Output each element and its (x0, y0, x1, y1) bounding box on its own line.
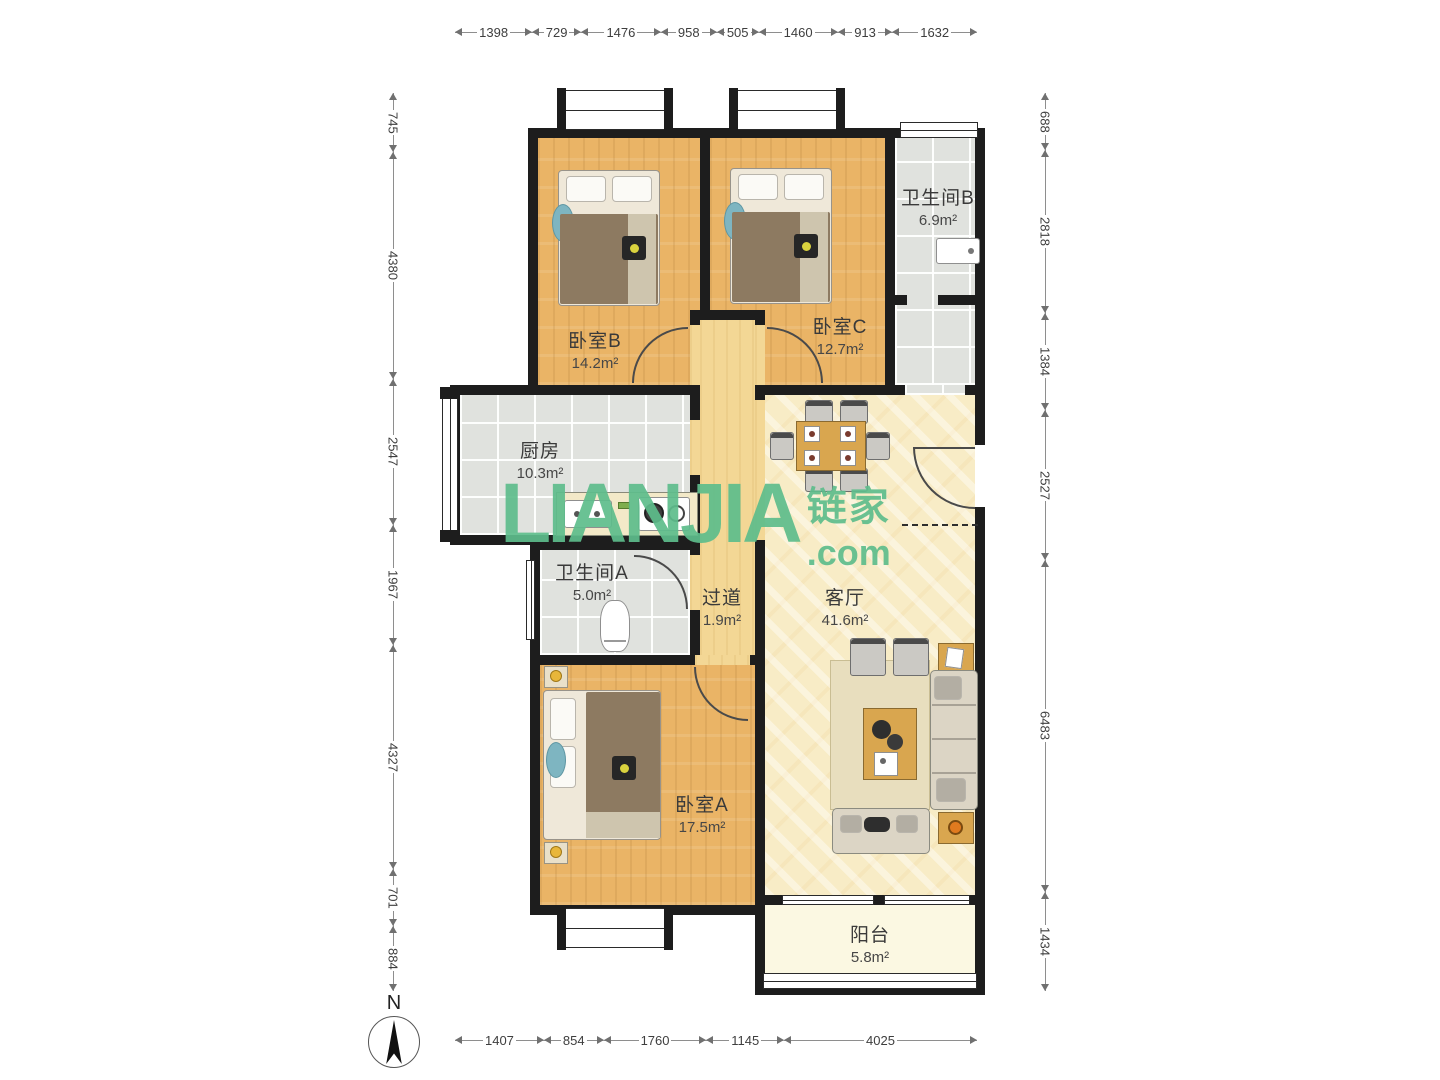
closet-wall-stub (938, 295, 985, 305)
dimension-value: 1460 (782, 26, 815, 39)
bed-pillow (550, 698, 576, 740)
room-name: 客厅 (780, 583, 910, 610)
sofa-pillow (896, 815, 918, 833)
sofa-pillow (936, 778, 966, 802)
dimension-segment: 2818 (1033, 150, 1057, 313)
room-area: 10.3m² (475, 465, 605, 482)
plate-dot (845, 455, 851, 461)
dimension-segment: 1407 (455, 1029, 544, 1051)
room-area: 17.5m² (637, 819, 767, 836)
window-cap (440, 387, 460, 399)
room-area: 5.0m² (527, 587, 657, 604)
north-arrow-icon (381, 1020, 407, 1064)
lamp-dot (802, 242, 811, 251)
dimension-value: 1967 (387, 568, 400, 601)
round-pillow (546, 742, 566, 778)
window-cap (557, 88, 566, 132)
dimension-value: 2527 (1039, 469, 1052, 502)
label-balcony: 阳台 5.8m² (805, 920, 935, 966)
opening-kitchen (690, 420, 700, 475)
dimension-segment: 6483 (1033, 560, 1057, 892)
room-name: 卫生间B (873, 183, 1003, 210)
room-name: 阳台 (805, 920, 935, 947)
dimension-segment: 4327 (381, 645, 405, 870)
balcony-slider-window (782, 895, 874, 905)
dimension-value: 958 (676, 26, 702, 39)
opening-hall-living (755, 400, 765, 540)
window-cap (729, 88, 738, 132)
label-kitchen: 厨房 10.3m² (475, 436, 605, 482)
toilet-seat-line (604, 640, 626, 642)
sofa-cushion-dark (864, 817, 890, 832)
sink-drain (594, 511, 600, 517)
dimension-segment: 1967 (381, 525, 405, 645)
lamp-dot (550, 670, 562, 682)
bed-pillow (612, 176, 652, 202)
bay-window-bedroom-c (737, 90, 837, 130)
plate-dot (845, 431, 851, 437)
dimension-value: 688 (1039, 109, 1052, 135)
armchair (850, 638, 886, 676)
sofa-pillow (934, 676, 962, 700)
dining-chair (770, 432, 794, 460)
room-name: 过道 (657, 583, 787, 610)
dimension-segment: 958 (661, 21, 717, 43)
plate-dot (880, 758, 886, 764)
balcony-window (763, 973, 977, 989)
room-name: 卧室B (530, 326, 660, 353)
dimension-value: 729 (544, 26, 570, 39)
label-bedroom-a: 卧室A 17.5m² (637, 790, 767, 836)
room-area: 41.6m² (780, 612, 910, 629)
dining-chair (840, 468, 868, 492)
dimension-column-left: 7454380254719674327701884 (381, 93, 405, 991)
dimension-segment: 4025 (784, 1029, 977, 1051)
room-area: 6.9m² (873, 212, 1003, 229)
lamp-dot (630, 244, 639, 253)
lamp-dot (550, 846, 562, 858)
label-bedroom-b: 卧室B 14.2m² (530, 326, 660, 372)
label-bathroom-a: 卫生间A 5.0m² (527, 558, 657, 604)
coffee-table-plate (874, 752, 898, 776)
label-living-room: 客厅 41.6m² (780, 583, 910, 629)
dining-chair (805, 468, 833, 492)
kitchen-sink (564, 500, 612, 528)
room-area: 1.9m² (657, 612, 787, 629)
room-name: 厨房 (475, 436, 605, 463)
north-compass: N (366, 992, 422, 1068)
dimension-segment: 854 (544, 1029, 604, 1051)
dimension-value: 1760 (639, 1034, 672, 1047)
dimension-value: 1384 (1039, 345, 1052, 378)
dimension-segment: 4380 (381, 152, 405, 379)
dimension-column-right: 68828181384252764831434 (1033, 93, 1057, 991)
dimension-value: 4380 (387, 249, 400, 282)
bed-pillow (566, 176, 606, 202)
dimension-segment: 745 (381, 93, 405, 152)
closet-wall-stub (885, 295, 907, 305)
dimension-value: 1407 (483, 1034, 516, 1047)
dining-chair (866, 432, 890, 460)
dimension-segment: 884 (381, 926, 405, 991)
dimension-segment: 1145 (706, 1029, 784, 1051)
room-name: 卧室A (637, 790, 767, 817)
lamp-dot (620, 764, 629, 773)
window-cap (557, 906, 566, 950)
window-cap (440, 530, 460, 542)
dimension-segment: 1384 (1033, 313, 1057, 410)
dimension-value: 2547 (387, 435, 400, 468)
entry-dashed-line (902, 524, 978, 526)
dimension-segment: 729 (532, 21, 581, 43)
window-cap (664, 906, 673, 950)
bay-window-bedroom-a (565, 908, 665, 948)
fruit-plate (948, 820, 963, 835)
dimension-value: 505 (725, 26, 751, 39)
coffee-table-tray (887, 734, 903, 750)
bed-pillow (738, 174, 778, 200)
door-gap-bedroom-c (755, 325, 765, 385)
kitchen-accessory (618, 502, 630, 509)
room-area: 12.7m² (775, 341, 905, 358)
book (945, 647, 965, 669)
dimension-value: 2818 (1039, 215, 1052, 248)
sofa-cushion-line (932, 738, 976, 740)
room-name: 卧室C (775, 312, 905, 339)
sink-drain (574, 511, 580, 517)
door-gap-bedroom-a (695, 655, 750, 665)
dimension-value: 701 (387, 885, 400, 911)
dimension-segment: 2547 (381, 379, 405, 525)
window-bathroom-b (900, 122, 978, 138)
room-area: 5.8m² (805, 949, 935, 966)
opening-bathroom-b (905, 385, 965, 395)
dimension-value: 1398 (477, 26, 510, 39)
window-cap (836, 88, 845, 132)
room-name: 卫生间A (527, 558, 657, 585)
armchair (893, 638, 929, 676)
stove-burner (644, 503, 664, 523)
compass-circle (368, 1016, 420, 1068)
sofa-cushion-line (932, 704, 976, 706)
dimension-value: 745 (387, 110, 400, 136)
dimension-segment: 701 (381, 869, 405, 926)
plate-dot (809, 455, 815, 461)
dimension-value: 884 (387, 946, 400, 972)
room-area: 14.2m² (530, 355, 660, 372)
label-bedroom-c: 卧室C 12.7m² (775, 312, 905, 358)
dimension-value: 1434 (1039, 925, 1052, 958)
dimension-value: 4327 (387, 741, 400, 774)
dimension-row-bottom: 1407854176011454025 (455, 1029, 977, 1051)
dimension-segment: 1398 (455, 21, 532, 43)
dimension-value: 1476 (604, 26, 637, 39)
dimension-value: 6483 (1039, 709, 1052, 742)
dimension-value: 1145 (729, 1034, 761, 1047)
entry-door-gap (975, 445, 985, 507)
dimension-value: 4025 (864, 1034, 897, 1047)
bay-window-bedroom-b (565, 90, 665, 130)
dimension-value: 1632 (918, 26, 951, 39)
stove-burner (668, 505, 685, 522)
dimension-segment: 1760 (604, 1029, 707, 1051)
dimension-segment: 913 (838, 21, 893, 43)
bay-window-kitchen (442, 398, 458, 531)
balcony-slider-window (884, 895, 970, 905)
bed-pillow (784, 174, 824, 200)
compass-label: N (366, 992, 422, 1015)
dimension-value: 854 (561, 1034, 587, 1047)
dimension-row-top: 1398729147695850514609131632 (455, 21, 977, 43)
dimension-value: 913 (852, 26, 878, 39)
door-gap-bedroom-b (690, 325, 700, 385)
label-hallway: 过道 1.9m² (657, 583, 787, 629)
floor-plan-page: 卧室B 14.2m² 卧室C 12.7m² 卫生间B 6.9m² 厨房 10.3… (0, 0, 1440, 1080)
dimension-segment: 688 (1033, 93, 1057, 150)
sofa-cushion-line (932, 772, 976, 774)
dimension-segment: 2527 (1033, 410, 1057, 560)
dimension-segment: 1460 (759, 21, 838, 43)
faucet-dot (968, 248, 974, 254)
dimension-segment: 505 (717, 21, 759, 43)
window-cap (664, 88, 673, 132)
sofa-pillow (840, 815, 862, 833)
dimension-segment: 1632 (892, 21, 977, 43)
label-bathroom-b: 卫生间B 6.9m² (873, 183, 1003, 229)
plate-dot (809, 431, 815, 437)
dimension-segment: 1434 (1033, 892, 1057, 991)
bathroom-a-toilet (600, 600, 630, 652)
dimension-segment: 1476 (581, 21, 661, 43)
